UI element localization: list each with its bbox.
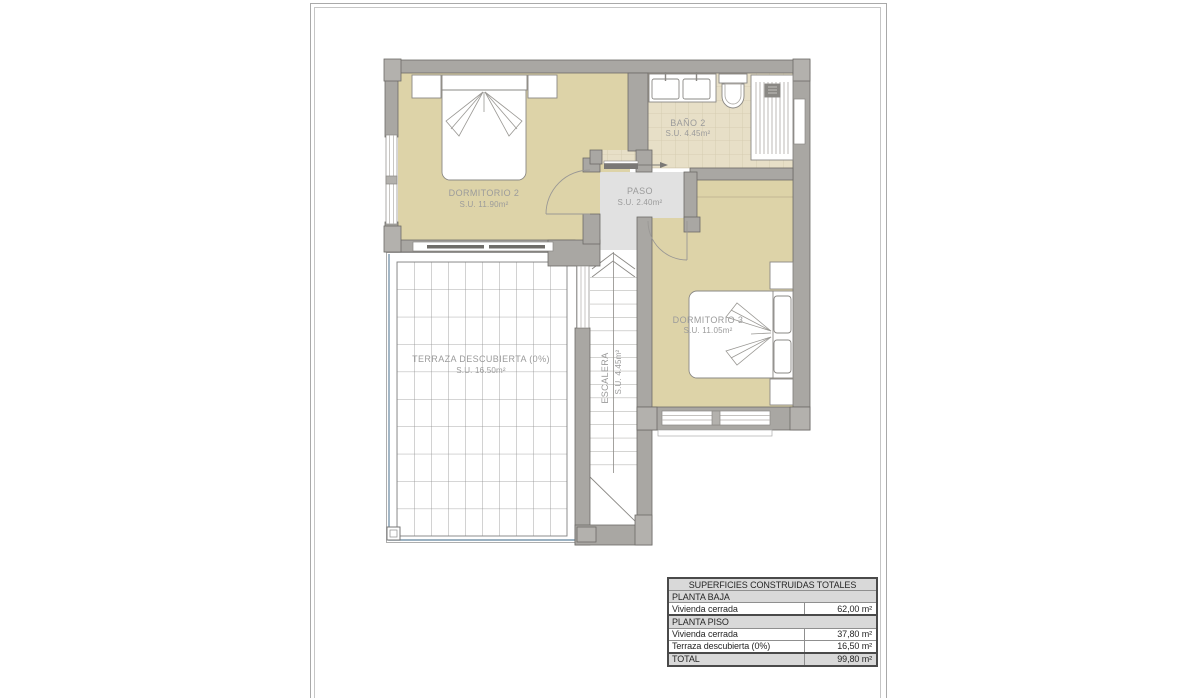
terraza-label: TERRAZA DESCUBIERTA (0%)	[412, 354, 550, 364]
wall-divider-dorm2-bath	[628, 73, 648, 151]
bed-d3-pillow-1	[774, 296, 791, 333]
row-value: 37,80 m²	[804, 629, 876, 640]
wall-paso-east	[684, 172, 697, 218]
bano2-label: BAÑO 2	[670, 118, 705, 128]
corner-block-top-left	[384, 59, 401, 81]
row-value: 62,00 m²	[804, 603, 876, 614]
wall-dorm3-west	[637, 217, 652, 545]
corner-block-top-right	[793, 59, 810, 81]
corner-block-left-mid	[384, 226, 401, 252]
row-label: PLANTA PISO	[669, 617, 876, 627]
paso-area: S.U. 2.40m²	[618, 198, 663, 207]
table-title: SUPERFICIES CONSTRUIDAS TOTALES	[669, 580, 876, 590]
table-row-total: TOTAL 99,80 m²	[669, 652, 876, 665]
row-value: 16,50 m²	[804, 641, 876, 652]
corner-block-stair-sw	[577, 527, 596, 542]
dormitorio3-floor-north	[697, 180, 793, 218]
terrace-post	[387, 527, 400, 540]
row-label: Vivienda cerrada	[669, 604, 804, 614]
paso-floor-lower	[600, 218, 637, 250]
surface-summary-table: SUPERFICIES CONSTRUIDAS TOTALES PLANTA B…	[667, 577, 878, 667]
toilet-bowl-inner	[725, 84, 741, 104]
corner-block-stair-se	[635, 515, 652, 545]
sink-basin-2	[683, 79, 710, 99]
shower-drain	[765, 84, 780, 97]
window-dorm3-south-mullion	[712, 411, 720, 425]
sliding-door-bath	[604, 164, 638, 170]
terrace	[387, 253, 577, 543]
wall-top	[385, 60, 810, 73]
window-dorm2-south-glass-2	[489, 245, 545, 249]
row-value: 99,80 m²	[804, 654, 876, 665]
row-label: PLANTA BAJA	[669, 592, 876, 602]
window-bath-east-niche	[794, 99, 805, 144]
bed-d3-pillow-2	[774, 340, 791, 373]
table-row-planta-baja: PLANTA BAJA	[669, 590, 876, 602]
paso-label: PASO	[627, 186, 653, 196]
wall-slider-jamb-left	[590, 150, 602, 164]
bed-d2-headboard	[442, 75, 527, 90]
nightstand-d2-left	[412, 75, 441, 98]
escalera-label: ESCALERA	[600, 352, 610, 403]
dormitorio2-area: S.U. 11.90m²	[460, 200, 509, 209]
nightstand-d3-bottom	[770, 379, 793, 405]
table-row-vivienda-piso: Vivienda cerrada 37,80 m²	[669, 628, 876, 640]
wall-paso-west-jamb-bottom	[583, 214, 600, 244]
wall-bath-dorm3	[690, 168, 793, 180]
floor-plan-drawing: DORMITORIO 2 S.U. 11.90m² BAÑO 2 S.U. 4.…	[0, 0, 1200, 698]
escalera-area: S.U. 4.45m²	[614, 349, 623, 394]
wall-slider-jamb-right	[636, 150, 652, 172]
window-stair-west	[577, 266, 589, 328]
sink-basin-1	[652, 79, 679, 99]
dormitorio3-area: S.U. 11.05m²	[684, 326, 733, 335]
terraza-area: S.U. 16.50m²	[456, 366, 506, 375]
sliding-door-bath-track	[604, 161, 638, 164]
table-row-planta-piso: PLANTA PISO	[669, 614, 876, 627]
window-dorm2-west-mullion	[386, 176, 397, 184]
table-header-row: SUPERFICIES CONSTRUIDAS TOTALES	[669, 579, 876, 590]
bano2-area: S.U. 4.45m²	[666, 129, 711, 138]
nightstand-d2-right	[528, 75, 557, 98]
window-dorm2-south-glass-1	[427, 245, 484, 249]
dormitorio3-label: DORMITORIO 3	[673, 315, 744, 325]
floor-plan-page: DORMITORIO 2 S.U. 11.90m² BAÑO 2 S.U. 4.…	[0, 0, 1200, 698]
window-dorm3-south-sill	[658, 430, 772, 436]
terrace-grid	[397, 262, 567, 536]
wall-paso-east-jamb	[684, 217, 700, 232]
wall-left-upper	[385, 73, 398, 137]
dormitorio2-label: DORMITORIO 2	[449, 188, 520, 198]
wall-stair-west	[575, 328, 590, 545]
nightstand-d3-top	[770, 262, 793, 289]
row-label: Terraza descubierta (0%)	[669, 641, 804, 651]
toilet-cistern	[719, 74, 747, 83]
table-row-terraza: Terraza descubierta (0%) 16,50 m²	[669, 640, 876, 652]
corner-block-dorm3-se	[790, 407, 810, 430]
row-label: TOTAL	[669, 654, 804, 664]
row-label: Vivienda cerrada	[669, 629, 804, 639]
corner-block-dorm3-sw	[637, 407, 657, 430]
table-row-vivienda-baja: Vivienda cerrada 62,00 m²	[669, 602, 876, 614]
